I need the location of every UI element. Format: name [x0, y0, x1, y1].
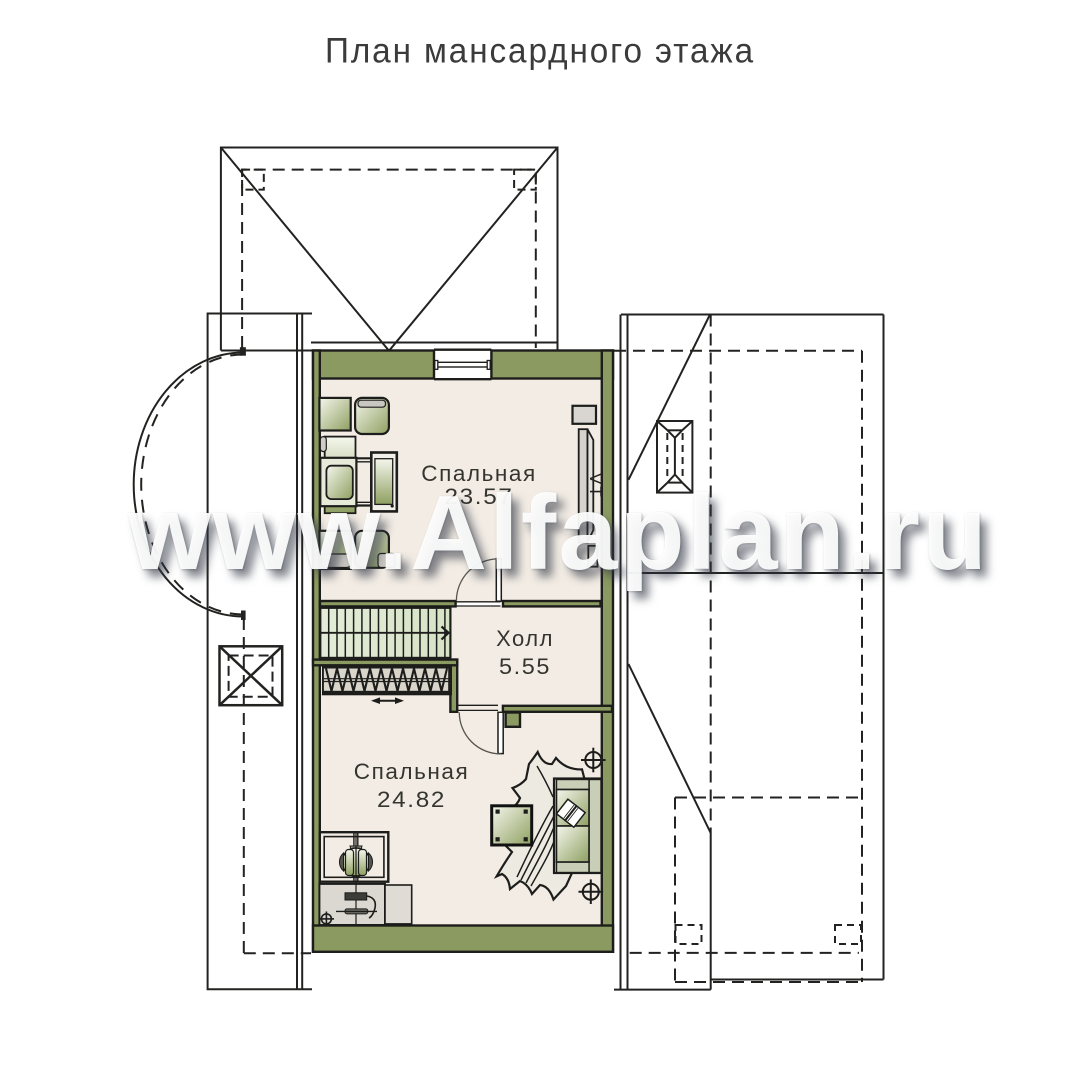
svg-text:Холл: Холл	[496, 626, 554, 651]
svg-text:Спальная: Спальная	[354, 759, 470, 784]
svg-text:24.82: 24.82	[377, 787, 446, 812]
svg-text:5.55: 5.55	[499, 654, 551, 679]
svg-text:План мансардного этажа: План мансардного этажа	[325, 32, 755, 71]
